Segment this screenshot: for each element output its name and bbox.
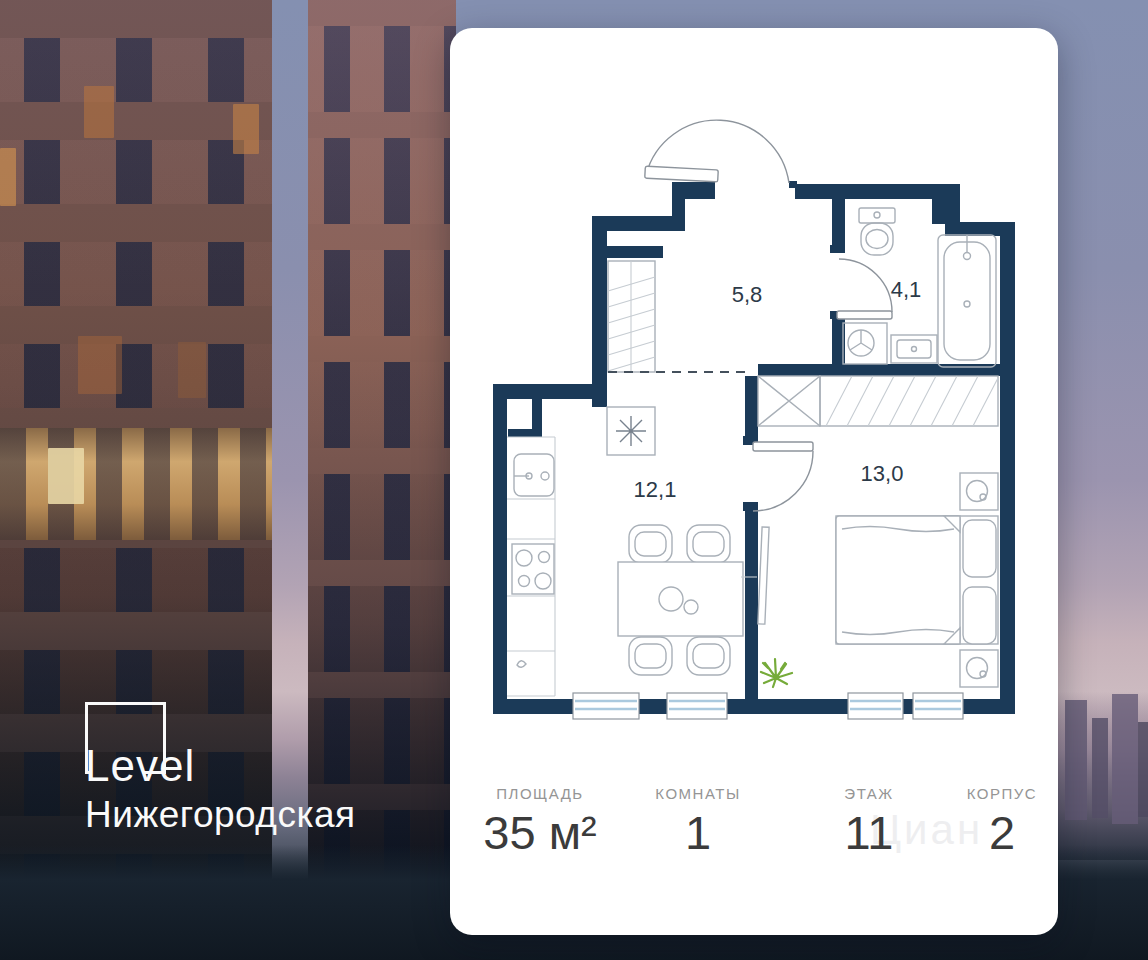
bed-icon [836, 516, 998, 644]
skyline-tower [1112, 694, 1138, 824]
plant-icon [761, 659, 792, 687]
stat-rooms-label: КОМНАТЫ [618, 785, 778, 802]
stat-rooms: КОМНАТЫ 1 [618, 785, 778, 856]
lit-window [78, 336, 122, 394]
lit-window [233, 104, 259, 154]
kitchen-small-item-icon [517, 661, 526, 668]
skyline-tower [1092, 718, 1108, 818]
screenshot-root: Level Нижегородская [0, 0, 1148, 960]
floor-plan-svg: 5,8 4,1 12,1 13,0 [485, 92, 1017, 742]
lit-window [84, 86, 114, 138]
stat-area-label: ПЛОЩАДЬ [460, 785, 620, 802]
lit-window [178, 342, 206, 398]
stat-building-value: 2 [922, 809, 1082, 856]
stat-area: ПЛОЩАДЬ 35 м² [460, 785, 620, 856]
stove-icon [512, 544, 554, 594]
stat-area-value: 35 м² [460, 809, 620, 856]
bedroom-wardrobe-hatch [758, 376, 998, 426]
nightstand-icon [960, 473, 998, 687]
room-label-hallway: 5,8 [732, 282, 763, 307]
dining-table-icon [618, 562, 743, 636]
stat-building: КОРПУС 2 [922, 785, 1082, 856]
tower-gold-glass-band [0, 428, 272, 540]
bathtub-icon [938, 235, 996, 367]
brand-name: Level [85, 744, 195, 788]
washing-machine-icon [843, 323, 887, 364]
room-label-kitchen: 12,1 [634, 477, 677, 502]
project-name: Нижегородская [85, 796, 356, 833]
floorplan-card: 5,8 4,1 12,1 13,0 Циан ПЛОЩАДЬ 35 м² КОМ… [450, 28, 1058, 935]
room-label-bedroom: 13,0 [861, 461, 904, 486]
stat-building-label: КОРПУС [922, 785, 1082, 802]
lit-window [0, 148, 16, 206]
logo-square-top [85, 702, 166, 705]
lit-window [48, 448, 84, 504]
toilet-icon [859, 208, 895, 255]
bathroom-door-icon [837, 259, 892, 319]
skyline-tower [1138, 722, 1148, 817]
room-label-bathroom: 4,1 [891, 277, 922, 302]
entrance-door-icon [645, 120, 789, 183]
level-logo: Level Нижегородская [85, 700, 415, 850]
ventilation-icon [607, 407, 655, 455]
hall-closet-hatch [608, 261, 655, 372]
stat-rooms-value: 1 [618, 809, 778, 856]
bathroom-sink-icon [891, 335, 937, 363]
bedroom-door-icon [753, 442, 813, 511]
kitchen-sink-icon [514, 454, 554, 496]
